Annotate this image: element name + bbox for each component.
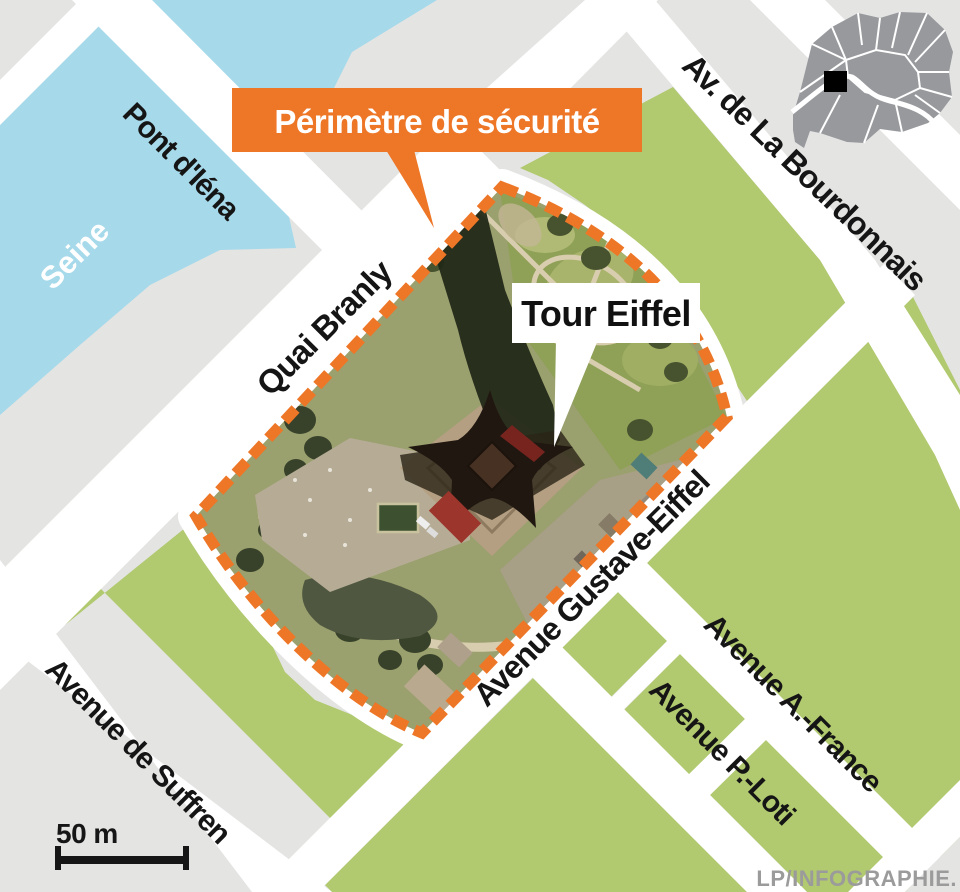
perimeter-callout-label: Périmètre de sécurité (274, 103, 599, 140)
infographic-map: Seine Pont d'Iéna Quai Branly Av. de La … (0, 0, 960, 892)
scale-label: 50 m (56, 818, 118, 849)
inset-location-marker (824, 71, 847, 92)
tower-callout-label: Tour Eiffel (521, 293, 691, 334)
map-canvas: Seine Pont d'Iéna Quai Branly Av. de La … (0, 0, 960, 892)
credit: LP/INFOGRAPHIE. (756, 866, 957, 891)
